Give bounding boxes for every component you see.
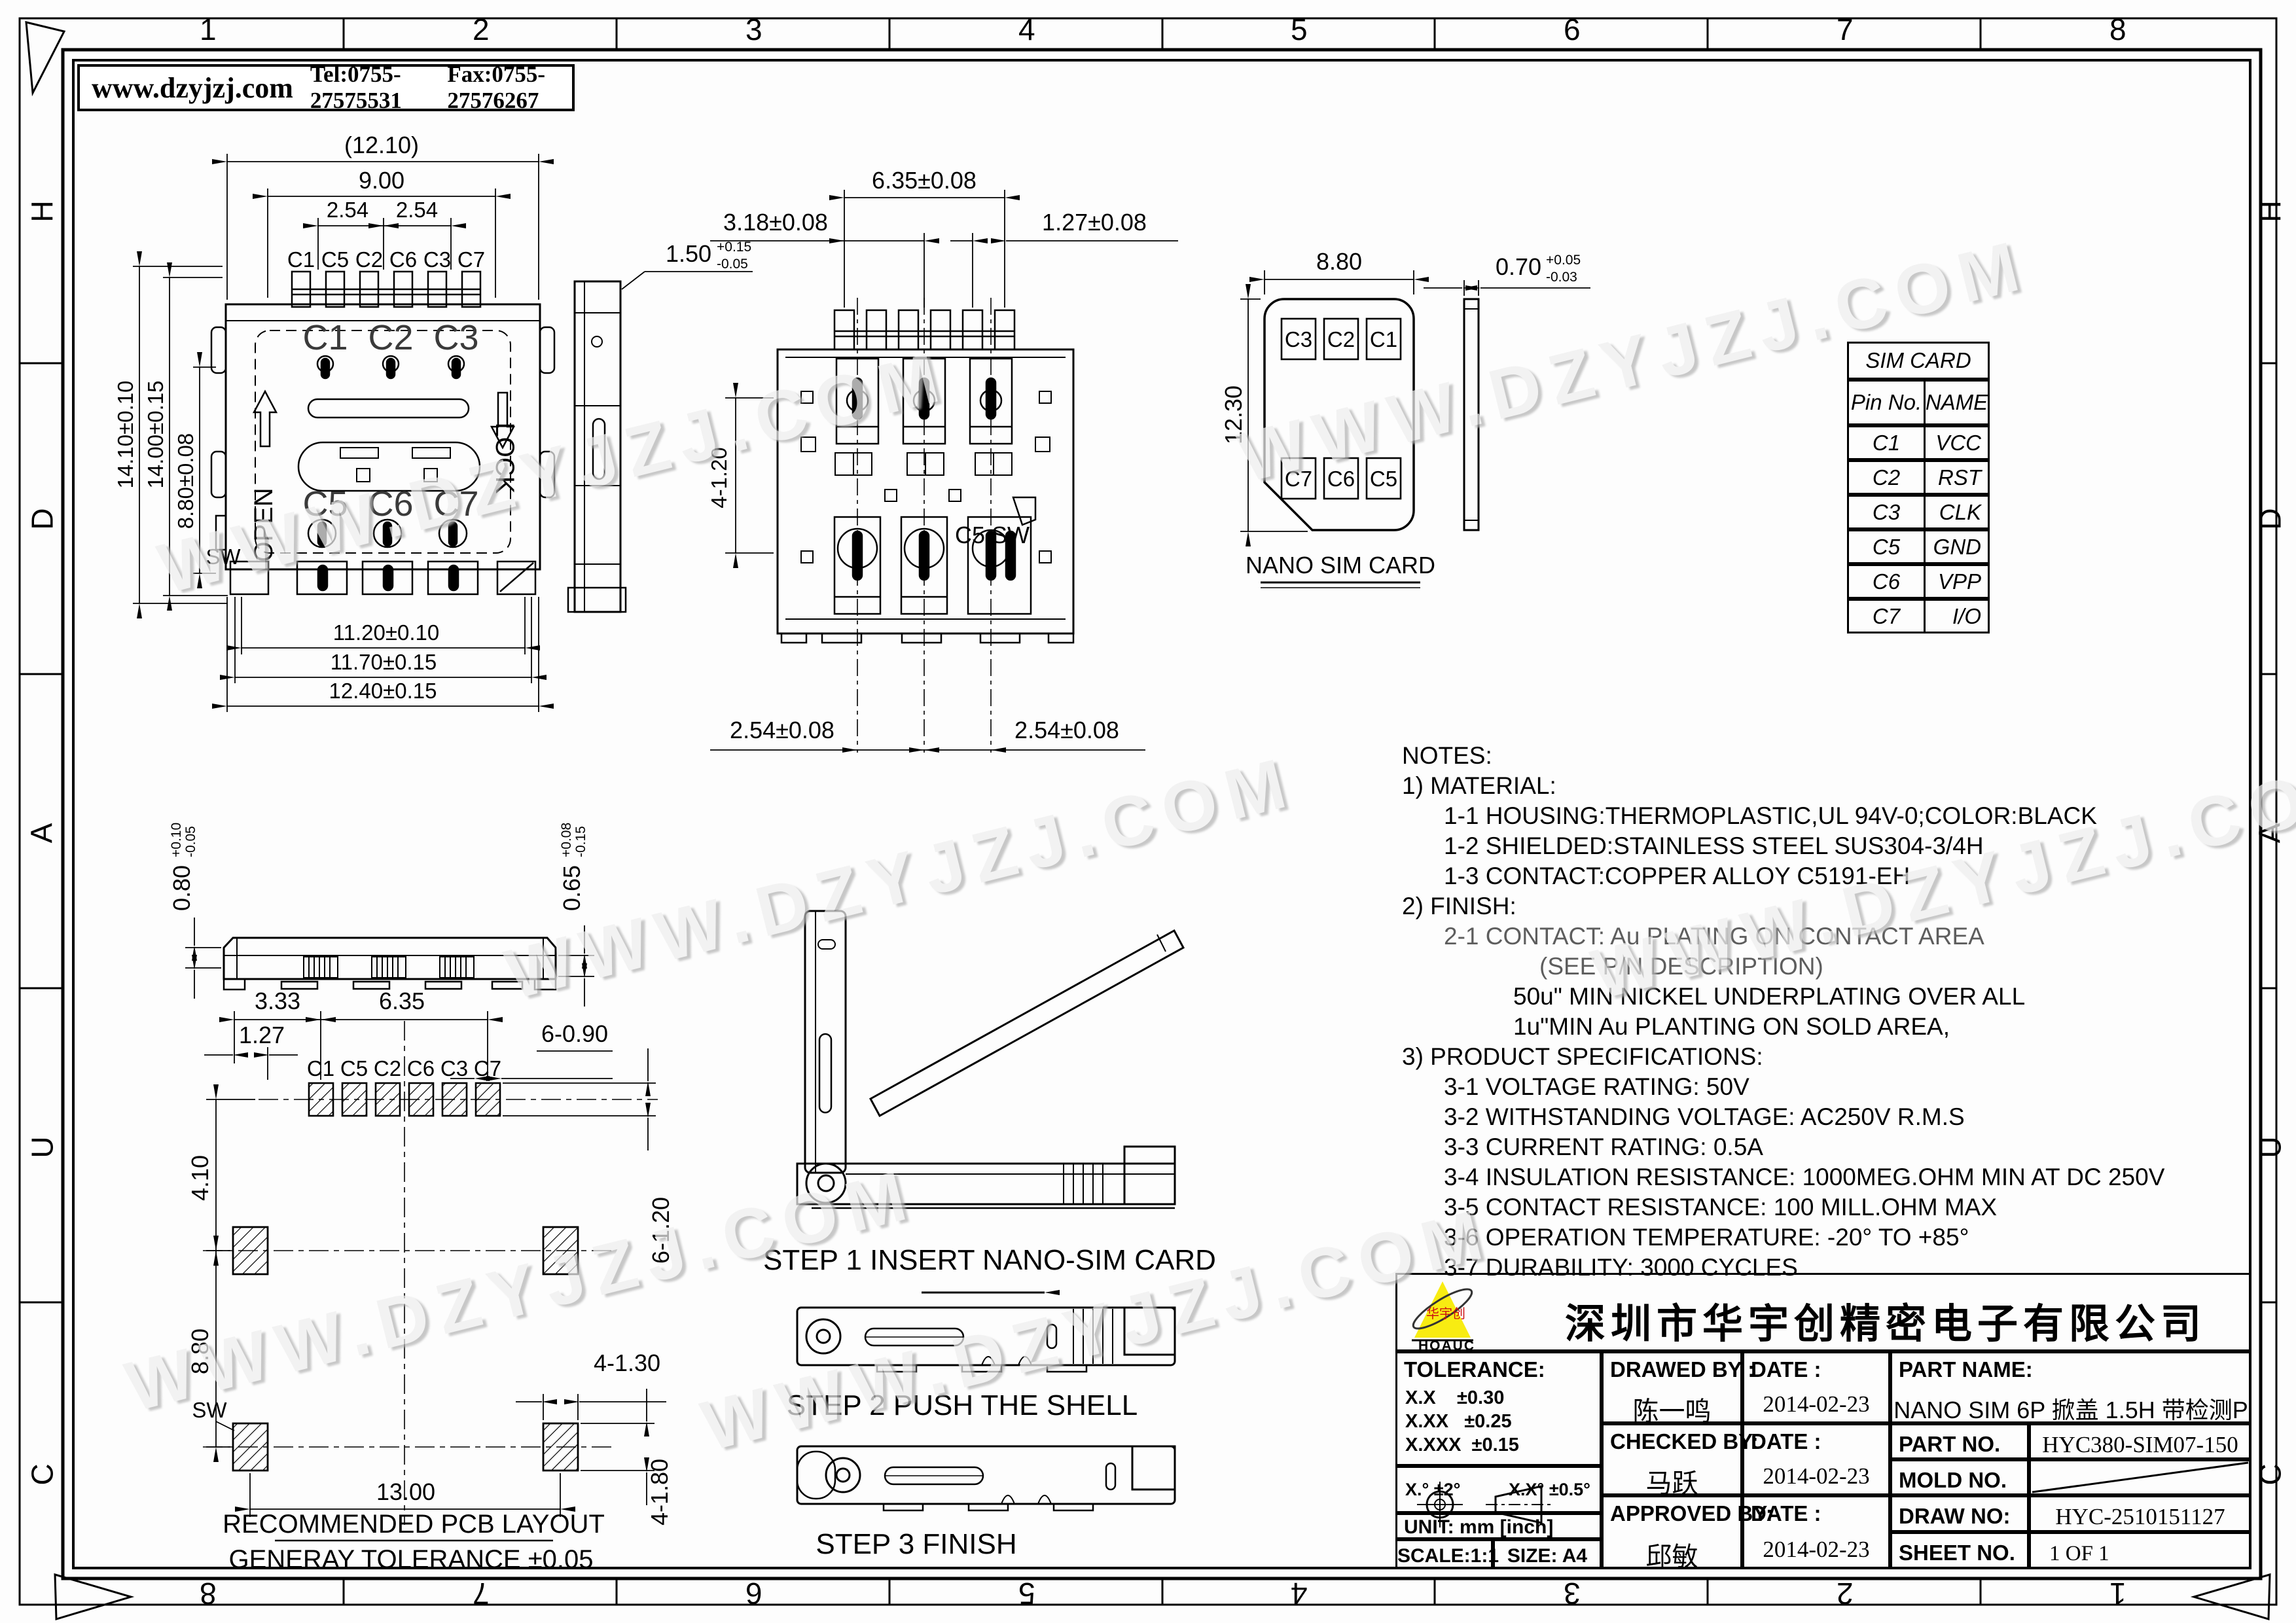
svg-text:1.27±0.08: 1.27±0.08 [1042,209,1147,236]
pin-table-title: SIM CARD [1847,342,1990,380]
pin-cell: C2 [1847,460,1926,495]
date-label: DATE : [1751,1501,1821,1526]
note-line: 1) MATERIAL: [1402,771,2272,801]
svg-text:2.54: 2.54 [327,198,368,222]
svg-text:-0.03: -0.03 [1546,270,1577,285]
pin-table-col-pin: Pin No. [1847,380,1926,425]
draw-no-label: DRAW NO: [1899,1504,2010,1529]
side-view [568,281,626,612]
note-line: 3-1 VOLTAGE RATING: 50V [1402,1072,2272,1102]
sheet-no-label: SHEET NO. [1899,1541,2015,1565]
svg-text:2.54: 2.54 [396,198,438,222]
svg-text:9.00: 9.00 [359,167,404,194]
pin-cell: C5 [1847,529,1926,564]
svg-text:(12.10): (12.10) [344,132,419,158]
svg-text:STEP 2 PUSH THE SHELL: STEP 2 PUSH THE SHELL [787,1389,1138,1421]
svg-text:C5: C5 [1370,467,1397,491]
svg-text:C2: C2 [355,247,383,272]
note-line: 3) PRODUCT SPECIFICATIONS: [1402,1042,2272,1072]
step3-view [797,1446,1175,1510]
svg-text:3.18±0.08: 3.18±0.08 [723,209,828,236]
svg-text:-0.15: -0.15 [573,826,588,857]
svg-text:华宇创: 华宇创 [1426,1306,1465,1321]
sheet-no-value: 1 OF 1 [2031,1542,2250,1566]
checked-date: 2014-02-23 [1744,1463,1888,1489]
svg-text:NANO SIM CARD: NANO SIM CARD [1246,552,1435,579]
note-line: 3-5 CONTACT RESISTANCE: 100 MILL.OHM MAX [1402,1192,2272,1222]
svg-text:6.35: 6.35 [379,988,425,1014]
drawing-sheet: 1 2 3 4 5 6 7 8 8 7 6 5 4 3 2 1 H D A U … [0,0,2296,1623]
company-name: 深圳市华宇创精密电子有限公司 [1522,1291,2250,1349]
tolerance-label: TOLERANCE: [1404,1357,1545,1382]
svg-text:C6: C6 [1327,467,1355,491]
svg-text:3.33: 3.33 [255,988,300,1014]
svg-text:C1: C1 [1370,327,1397,351]
svg-text:2.54±0.08: 2.54±0.08 [730,717,834,743]
svg-text:RECOMMENDED PCB LAYOUT: RECOMMENDED PCB LAYOUT [223,1510,605,1539]
svg-text:12.30: 12.30 [1220,385,1247,444]
pin-cell: C7 [1847,599,1926,633]
svg-text:C3: C3 [440,1056,468,1080]
svg-text:C5 SW: C5 SW [955,522,1030,548]
svg-text:4-1.20: 4-1.20 [707,447,731,508]
svg-text:1.27: 1.27 [239,1022,285,1048]
svg-text:C2: C2 [368,318,413,357]
pin-table-col-name: NAME [1924,380,1990,425]
svg-text:C1: C1 [302,318,348,357]
svg-text:C7: C7 [457,247,485,272]
svg-text:STEP 1 INSERT NANO-SIM CARD: STEP 1 INSERT NANO-SIM CARD [763,1244,1216,1276]
svg-text:C1: C1 [307,1056,334,1080]
note-line: 1u"MIN Au PLANTING ON SOLD AREA, [1402,1012,2272,1042]
notes-block: NOTES: 1) MATERIAL: 1-1 HOUSING:THERMOPL… [1402,741,2272,1283]
drawed-date: 2014-02-23 [1744,1391,1888,1418]
note-line: 3-3 CURRENT RATING: 0.5A [1402,1132,2272,1162]
svg-text:8.80: 8.80 [1316,248,1362,275]
svg-text:0.70: 0.70 [1496,253,1541,280]
svg-text:1.50: 1.50 [666,240,711,267]
svg-text:14.10±0.10: 14.10±0.10 [113,381,137,489]
scale-label: SCALE:1:1 [1397,1545,1491,1567]
svg-text:STEP 3 FINISH: STEP 3 FINISH [816,1528,1016,1560]
svg-text:C2: C2 [1327,327,1355,351]
name-cell: VCC [1924,425,1990,460]
svg-text:14.00±0.15: 14.00±0.15 [143,381,168,489]
checked-by-label: CHECKED BY: [1610,1429,1759,1454]
svg-text:C7: C7 [1285,467,1312,491]
svg-text:C6: C6 [407,1056,435,1080]
tolerance-row: X.XXX ±0.15 [1405,1435,1519,1456]
svg-text:SW: SW [192,1398,227,1422]
date-label: DATE : [1751,1357,1821,1382]
svg-text:+0.08: +0.08 [559,823,574,857]
svg-text:C6: C6 [368,484,413,524]
pin-cell: C1 [1847,425,1926,460]
svg-text:C5: C5 [302,484,348,524]
step1-view [797,911,1183,1208]
svg-text:6-1.20: 6-1.20 [647,1197,674,1264]
svg-text:6.35±0.08: 6.35±0.08 [872,167,977,194]
note-line: 2) FINISH: [1402,891,2272,921]
mold-no-label: MOLD NO. [1899,1468,2007,1493]
svg-text:11.70±0.15: 11.70±0.15 [331,650,437,674]
note-line: 1-3 CONTACT:COPPER ALLOY C5191-EH [1402,861,2272,891]
svg-text:6-0.90: 6-0.90 [541,1020,608,1047]
svg-text:GENERAY TOLERANCE ±0.05: GENERAY TOLERANCE ±0.05 [229,1545,594,1574]
profile-view [224,938,556,990]
svg-text:4-1.30: 4-1.30 [594,1349,660,1376]
card-side-view [1464,299,1479,530]
name-cell: RST [1924,460,1990,495]
note-line: 3-6 OPERATION TEMPERATURE: -20° TO +85° [1402,1222,2272,1253]
svg-text:C3: C3 [423,247,451,272]
svg-text:C7: C7 [433,484,478,524]
name-cell: VPP [1924,564,1990,599]
svg-text:+0.15: +0.15 [717,240,751,255]
part-no-label: PART NO. [1899,1432,2000,1457]
svg-text:C6: C6 [389,247,417,272]
svg-text:-0.05: -0.05 [183,826,198,857]
date-label: DATE : [1751,1429,1821,1454]
svg-text:0.65: 0.65 [558,865,585,911]
svg-text:C5: C5 [321,247,349,272]
svg-text:C7: C7 [474,1056,501,1080]
approved-by-name: 邱敏 [1604,1535,1740,1573]
svg-text:SW: SW [206,544,241,569]
svg-text:C5: C5 [340,1056,368,1080]
note-line: 3-2 WITHSTANDING VOLTAGE: AC250V R.M.S [1402,1102,2272,1132]
svg-text:+0.10: +0.10 [169,823,184,857]
note-line: 1-2 SHIELDED:STAINLESS STEEL SUS304-3/4H [1402,831,2272,861]
name-cell: GND [1924,529,1990,564]
part-no-value: HYC380-SIM07-150 [2031,1432,2250,1458]
svg-text:11.20±0.10: 11.20±0.10 [333,620,439,645]
tolerance-row: X.XX ±0.25 [1405,1411,1512,1433]
svg-text:12.40±0.15: 12.40±0.15 [329,679,437,703]
notes-title: NOTES: [1402,741,2272,771]
svg-text:C1: C1 [287,247,315,272]
company-logo: 华宇创 HOAUC [1407,1277,1518,1351]
svg-text:0.80: 0.80 [168,865,195,911]
note-line: 50u" MIN NICKEL UNDERPLATING OVER ALL [1402,982,2272,1012]
svg-text:HOAUC: HOAUC [1418,1338,1475,1351]
note-line: 3-4 INSULATION RESISTANCE: 1000MEG.OHM M… [1402,1162,2272,1192]
svg-text:OPEN: OPEN [249,488,278,562]
svg-text:8.80: 8.80 [187,1329,213,1374]
svg-text:13.00: 13.00 [376,1478,435,1505]
svg-text:C3: C3 [433,318,478,357]
note-line: 1-1 HOUSING:THERMOPLASTIC,UL 94V-0;COLOR… [1402,801,2272,831]
approved-date: 2014-02-23 [1744,1537,1888,1563]
svg-text:C2: C2 [374,1056,401,1080]
svg-text:4.10: 4.10 [187,1155,213,1201]
drawed-by-label: DRAWED BY : [1610,1357,1755,1382]
svg-text:2.54±0.08: 2.54±0.08 [1014,717,1119,743]
svg-text:C3: C3 [1285,327,1312,351]
note-line: (SEE P/N DESCRIPTION) [1402,952,2272,982]
name-cell: CLK [1924,495,1990,529]
part-name-label: PART NAME: [1899,1357,2033,1382]
drawed-by-name: 陈一鸣 [1604,1390,1740,1428]
note-line: 2-1 CONTACT: Au PLATING ON CONTACT AREA [1402,921,2272,952]
svg-text:LOCK: LOCK [490,423,519,494]
unit-label: UNIT: mm [inch] [1404,1516,1553,1539]
part-name-value: NANO SIM 6P 掀盖 1.5H 带检测P [1892,1391,2250,1425]
draw-no-value: HYC-2510151127 [2031,1504,2250,1530]
pin-cell: C3 [1847,495,1926,529]
pcb-layout [203,1011,666,1541]
mold-no-blank [2031,1461,2250,1493]
svg-text:-0.05: -0.05 [717,257,748,272]
svg-text:8.80±0.08: 8.80±0.08 [173,433,198,529]
name-cell: I/O [1924,599,1990,633]
tolerance-row: X.X ±0.30 [1405,1387,1504,1409]
size-label: SIZE: A4 [1495,1545,1600,1567]
pin-cell: C6 [1847,564,1926,599]
svg-text:4-1.80: 4-1.80 [646,1459,673,1525]
checked-by-name: 马跃 [1604,1462,1740,1500]
step2-view [797,1308,1175,1372]
svg-text:+0.05: +0.05 [1546,253,1581,268]
